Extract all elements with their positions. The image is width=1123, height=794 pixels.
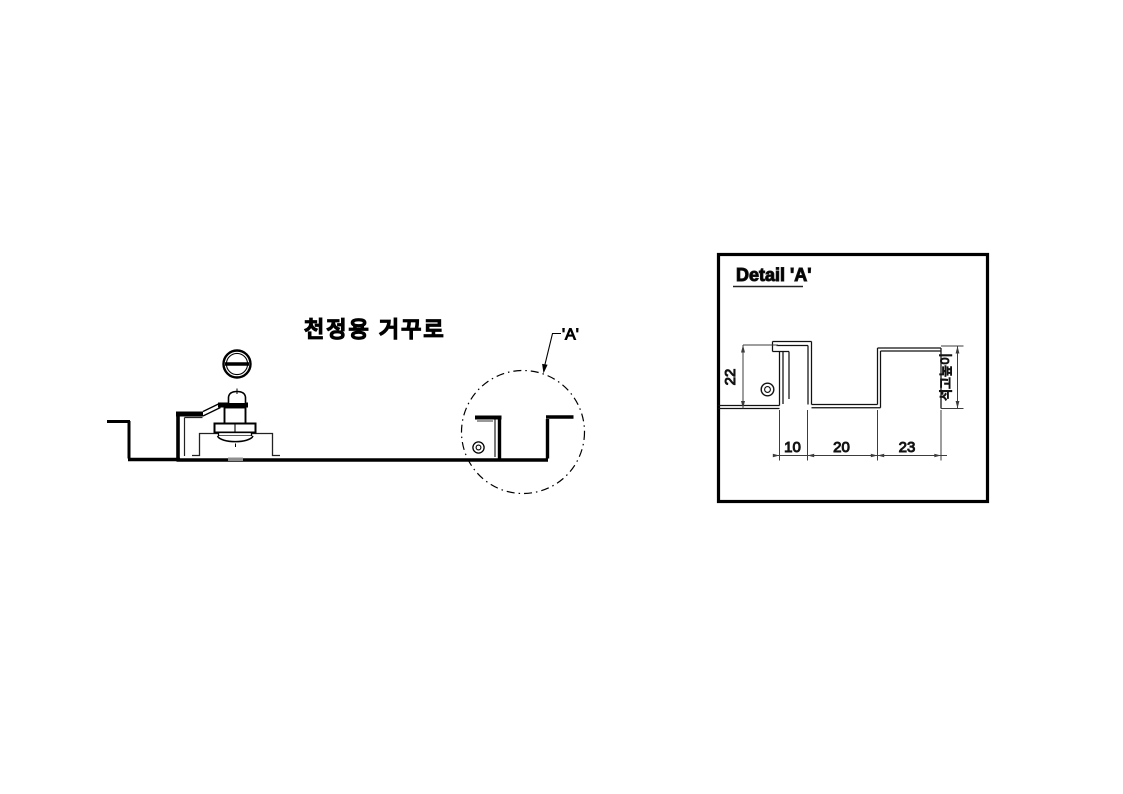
dim-label-plaster-height: 석고높이 xyxy=(939,353,954,401)
cad-drawing: 천정용 거꾸로 xyxy=(0,0,1123,794)
latch-hole-mark xyxy=(228,458,243,462)
drawing-sheet: 천정용 거꾸로 xyxy=(0,0,1123,794)
detail-callout-circle xyxy=(462,371,585,494)
detail-callout-leader xyxy=(542,334,561,374)
dim-label-w2: 20 xyxy=(833,439,850,456)
target-mark-icon xyxy=(473,442,484,453)
main-section-view: 천정용 거꾸로 xyxy=(107,317,585,494)
detail-view-title: Detail 'A' xyxy=(736,265,812,285)
main-view-title: 천정용 거꾸로 xyxy=(304,317,446,342)
detail-callout-label: 'A' xyxy=(562,327,579,344)
latch-body xyxy=(225,408,246,424)
detail-target-mark-icon xyxy=(761,383,774,396)
latch-washer xyxy=(219,433,252,437)
detail-a-view: Detail 'A' xyxy=(718,255,988,502)
dim-label-w1: 10 xyxy=(784,439,801,456)
ceiling-frame-right xyxy=(546,417,574,459)
dim-label-w3: 23 xyxy=(899,439,916,456)
cam-latch-assembly xyxy=(203,389,256,448)
ceiling-frame-left xyxy=(107,412,203,460)
latch-skirt xyxy=(218,436,254,442)
slotted-screw-head-icon xyxy=(224,351,251,378)
detail-dimensions xyxy=(741,345,964,461)
cam-arm xyxy=(203,403,221,416)
dim-label-height: 22 xyxy=(722,369,739,386)
detail-profile xyxy=(718,342,941,409)
